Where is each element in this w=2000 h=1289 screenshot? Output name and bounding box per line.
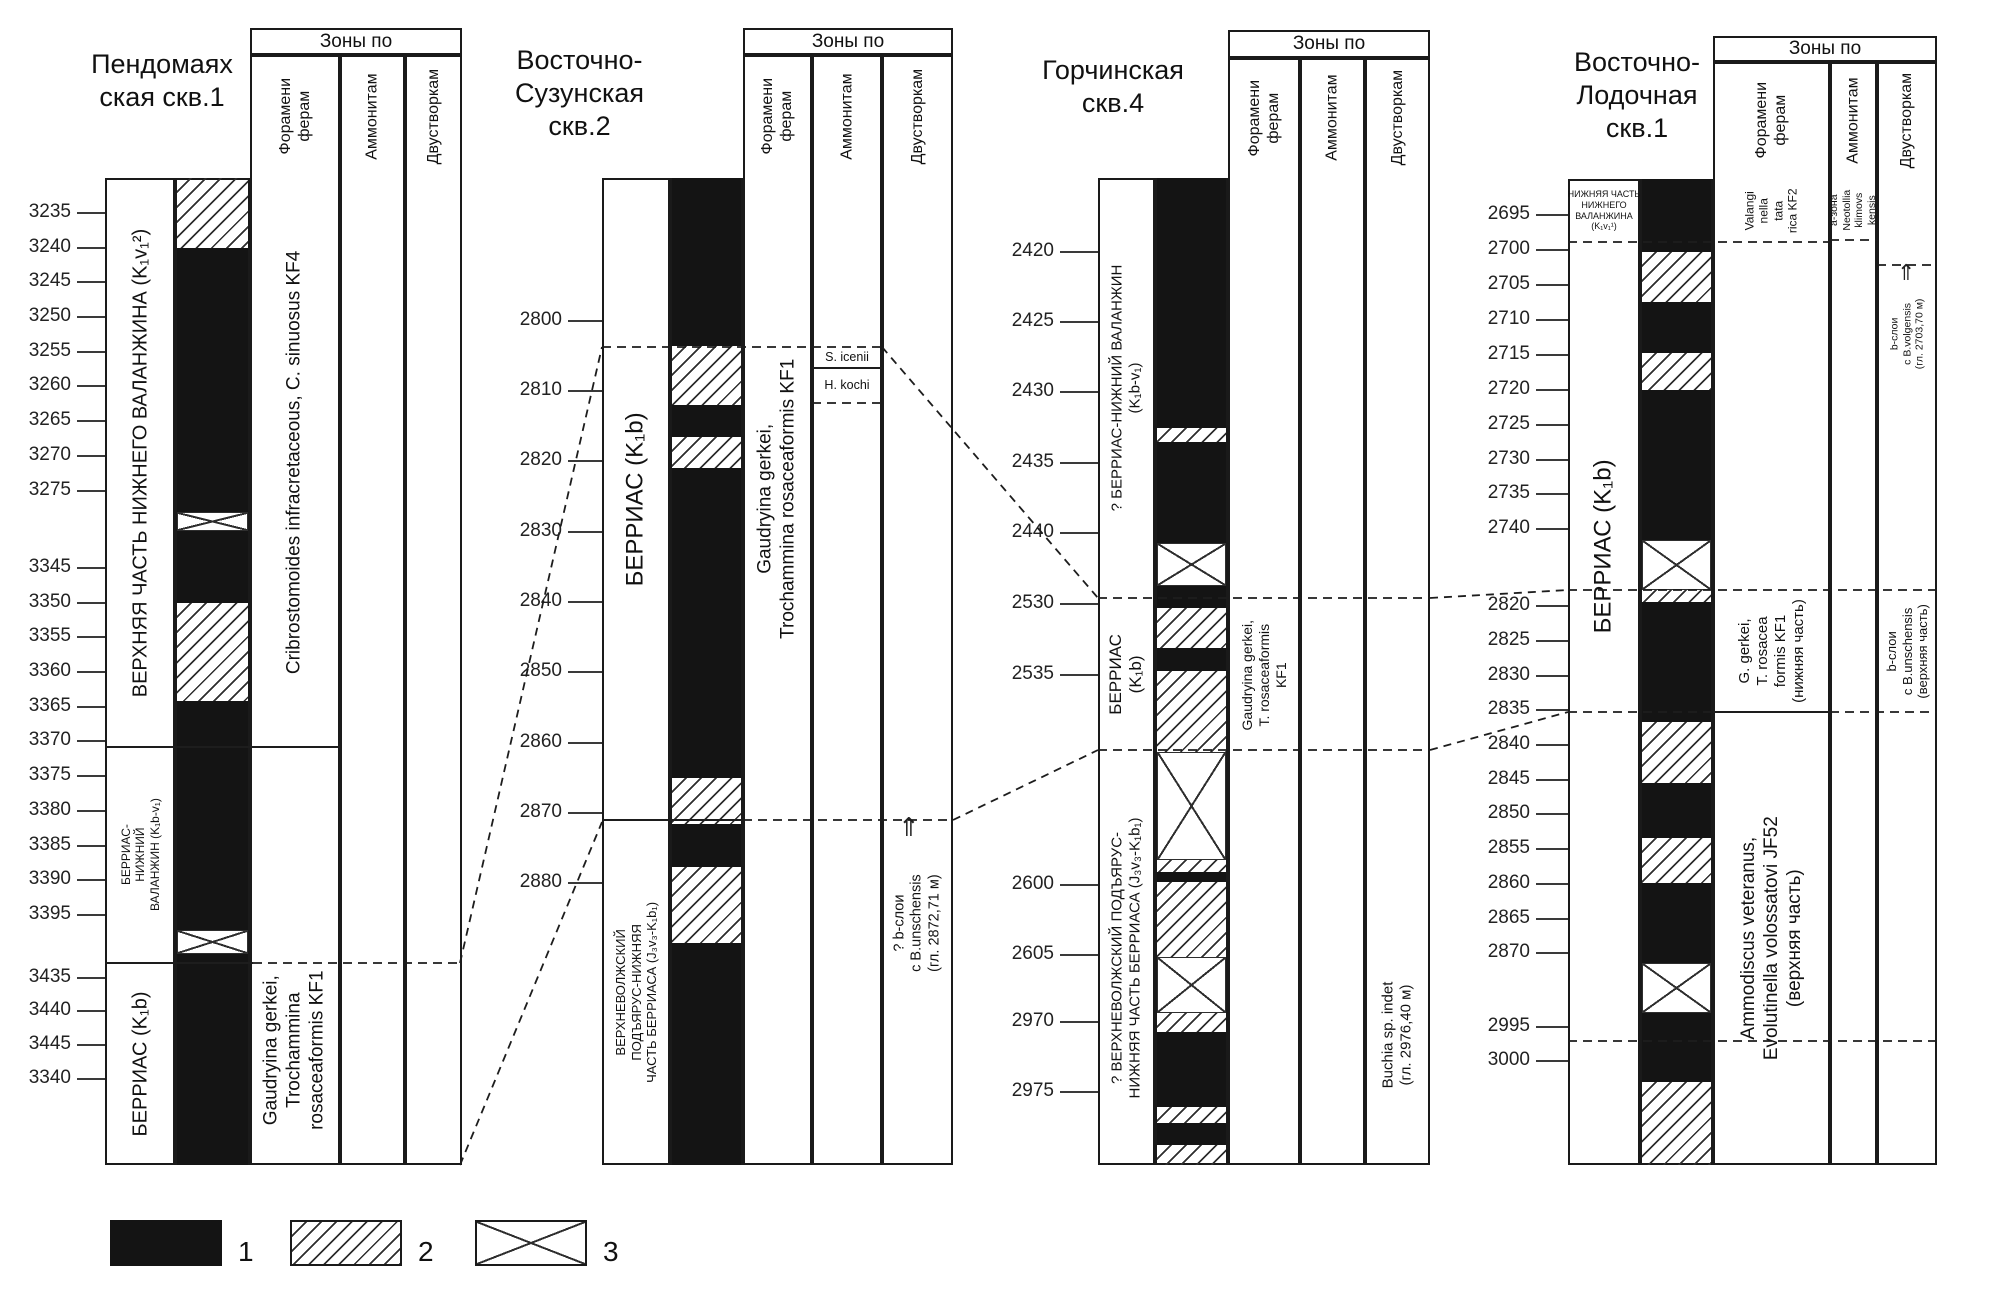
zone-column-label-text: Двустворкам — [1897, 73, 1916, 169]
text-line: (верхняя часть) — [1915, 604, 1931, 698]
depth-tick-line — [1060, 1021, 1098, 1023]
well-title-line: ская скв.1 — [52, 81, 272, 114]
litho-band-hatch — [1642, 722, 1711, 783]
depth-tick-label: 2600 — [992, 873, 1054, 895]
depth-tick-line — [568, 671, 602, 673]
text-line: (K₁b) — [1127, 634, 1147, 715]
strat-unit-label: ВЕРХНЯЯ ЧАСТЬ НИЖНЕГО ВАЛАНЖИНА (K₁v₁²) — [105, 178, 175, 747]
litho-band-hatch — [672, 778, 741, 824]
litho-band-hatch — [1157, 428, 1226, 442]
zone-column-label: Двустворкам — [1877, 62, 1937, 179]
text-line: rosaceaformis KF1 — [306, 970, 329, 1129]
up-arrow-icon: ⇑ — [1897, 262, 1915, 284]
zone-column-label-text: Двустворкам — [908, 69, 927, 165]
depth-tick-label: 2740 — [1468, 517, 1530, 539]
text-line: Двустворкам — [1897, 73, 1916, 169]
depth-tick-line — [1536, 389, 1568, 391]
zone-column-label: Аммонитам — [812, 55, 882, 178]
zones-header: Зоны по — [1713, 36, 1937, 62]
depth-tick-label: 2845 — [1468, 768, 1530, 790]
litho-band-black — [1157, 648, 1226, 671]
depth-tick-line — [1536, 214, 1568, 216]
depth-tick-label: 3380 — [9, 799, 71, 821]
zone-text-text: Buchia sp. indet(гл. 2976,40 м) — [1380, 982, 1416, 1089]
zone-column-ammonites — [340, 55, 405, 1165]
text-line: БЕРРИАС (K₁b) — [622, 412, 651, 586]
text-line: ферам — [1772, 82, 1791, 159]
depth-tick-line — [568, 882, 602, 884]
text-line: b-слои — [1884, 604, 1900, 698]
depth-tick-line — [1060, 1091, 1098, 1093]
zone-column-label: Форамениферам — [743, 55, 812, 178]
text-line: ВАЛАНЖИНА — [1568, 211, 1641, 222]
zone-column-label: Форамениферам — [1713, 62, 1830, 179]
zones-header-label: Зоны по — [320, 31, 392, 53]
depth-tick-line — [1060, 674, 1098, 676]
well-title: Пендомаяхская скв.1 — [52, 48, 272, 114]
text-line: Cribrostomoides infracretaceous, C. sinu… — [284, 251, 307, 674]
strat-unit-label-text: БЕРРИАС(K₁b) — [1106, 634, 1147, 715]
text-line: T. rosacea — [1753, 599, 1771, 703]
depth-tick-line — [1060, 884, 1098, 886]
depth-tick-label: 2825 — [1468, 629, 1530, 651]
strat-unit-label: БЕРРИАС-НИЖНИЙВАЛАНЖИН (K₁b-v₁) — [105, 747, 175, 963]
depth-tick-label: 2420 — [992, 240, 1054, 262]
depth-tick-line — [1536, 528, 1568, 530]
depth-tick-line — [1536, 1026, 1568, 1028]
depth-tick-label: 2720 — [1468, 378, 1530, 400]
depth-tick-label: 2425 — [992, 310, 1054, 332]
depth-tick-line — [1536, 813, 1568, 815]
depth-tick-line — [568, 320, 602, 322]
depth-tick-label: 2725 — [1468, 413, 1530, 435]
litho-band-black — [1642, 883, 1711, 963]
litho-band-hatch — [1157, 860, 1226, 872]
depth-tick-line — [1060, 321, 1098, 323]
depth-tick-label: 3345 — [9, 556, 71, 578]
text-line: Evolutinella volossatovi JF52 — [1760, 817, 1783, 1061]
depth-tick-label: 2605 — [992, 943, 1054, 965]
text-line: БЕРРИАС- — [118, 799, 132, 912]
up-arrow-icon: ⇑ — [898, 814, 920, 840]
zone-text-text: G. gerkei,T. rosaceaformis KF1(нижняя ча… — [1735, 599, 1807, 703]
litho-band-black — [1642, 390, 1711, 540]
zone-column-label: Форамениферам — [1228, 58, 1300, 178]
depth-tick-label: 2865 — [1468, 907, 1530, 929]
depth-tick-label: 2530 — [992, 592, 1054, 614]
litho-band-hatch — [672, 437, 741, 468]
depth-tick-line — [77, 879, 105, 881]
text-line: (верхняя часть) — [1783, 817, 1806, 1061]
depth-tick-label: 2710 — [1468, 308, 1530, 330]
text-line: (гл. 2703,70 м) — [1913, 299, 1926, 370]
depth-tick-line — [1536, 952, 1568, 954]
zone-text: Gaudryina gerkei,Trochammina rosaceaform… — [743, 178, 812, 820]
text-line: a-зона — [1828, 190, 1841, 231]
strat-unit-label: БЕРРИАС (K₁b) — [602, 178, 670, 820]
text-line: с B.volgensis — [1901, 299, 1914, 370]
text-line: Trochammina — [284, 970, 307, 1129]
depth-tick-label: 2850 — [500, 660, 562, 682]
depth-tick-line — [1060, 391, 1098, 393]
strat-unit-label-text: НИЖНЯЯ ЧАСТЬНИЖНЕГОВАЛАНЖИНА(K₁v₁¹) — [1568, 189, 1641, 232]
litho-band-hatch — [1157, 882, 1226, 957]
litho-band-hatch — [177, 178, 248, 248]
text-line: Gaudryina gerkei, — [755, 359, 778, 639]
depth-tick-line — [1060, 462, 1098, 464]
zone-text-text: Gaudryina gerkei,T. rosaceaformisKF1 — [1239, 620, 1289, 731]
depth-tick-label: 3250 — [9, 305, 71, 327]
litho-band-black — [672, 178, 741, 346]
text-line: kensis — [1866, 190, 1879, 231]
text-line: НИЖНИЙ — [133, 799, 147, 912]
litho-band-black — [1157, 1032, 1226, 1107]
well-title-line: скв.2 — [462, 110, 697, 143]
text-line: (нижняя часть) — [1789, 599, 1807, 703]
litho-band-black — [177, 531, 248, 603]
text-line: Gaudryina gerkei, — [1239, 620, 1256, 731]
depth-tick-line — [77, 1078, 105, 1080]
text-line: Аммонитам — [1323, 75, 1342, 161]
depth-tick-label: 2840 — [500, 590, 562, 612]
zones-header-label: Зоны по — [812, 31, 884, 53]
text-line: G. gerkei, — [1735, 599, 1753, 703]
legend-swatch-cross — [475, 1220, 587, 1266]
text-line: Форамени — [276, 78, 295, 155]
litho-band-hatch — [1157, 1013, 1226, 1032]
zone-text: a-зонаNeotolliaklimovskensis — [1830, 179, 1877, 242]
litho-band-hatch — [1642, 1082, 1711, 1165]
zone-text-text: Valanginellatatarica KF2 — [1743, 188, 1801, 233]
text-line: Двустворкам — [908, 69, 927, 165]
depth-tick-line — [77, 490, 105, 492]
depth-tick-label: 2870 — [1468, 941, 1530, 963]
zone-column-ammonites — [812, 55, 882, 1165]
depth-tick-line — [77, 977, 105, 979]
strat-unit-label-text: БЕРРИАС (K₁b) — [622, 412, 651, 586]
zone-column-bivalves — [405, 55, 462, 1165]
zone-text: Ammodiscus veteranus,Evolutinella voloss… — [1713, 712, 1830, 1165]
depth-tick-label: 2855 — [1468, 837, 1530, 859]
text-line: Neotollia — [1841, 190, 1854, 231]
depth-tick-line — [1536, 848, 1568, 850]
depth-tick-label: 2820 — [1468, 594, 1530, 616]
depth-tick-line — [77, 281, 105, 283]
depth-tick-line — [1536, 424, 1568, 426]
strat-unit-label: БЕРРИАС(K₁b) — [1098, 598, 1155, 750]
depth-tick-line — [1536, 459, 1568, 461]
text-line: (гл. 2976,40 м) — [1398, 982, 1416, 1089]
depth-tick-line — [1060, 603, 1098, 605]
depth-tick-line — [77, 247, 105, 249]
text-line: НИЖНЯЯ ЧАСТЬ БЕРРИАСА (J₃v₃-K₁b₁) — [1127, 817, 1145, 1098]
depth-tick-line — [1536, 675, 1568, 677]
zones-header: Зоны по — [250, 28, 462, 55]
text-line: Gaudryina gerkei, — [261, 970, 284, 1129]
depth-tick-label: 3365 — [9, 695, 71, 717]
text-line: ЧАСТЬ БЕРРИАСА (J₃v₃-K₁b₁) — [644, 902, 660, 1083]
zone-column-label: Аммонитам — [1830, 62, 1877, 179]
zone-text: S. icenii — [812, 347, 882, 368]
text-line: Valangi — [1743, 188, 1757, 233]
text-line: nella — [1757, 188, 1771, 233]
text-line: Аммонитам — [837, 73, 856, 159]
strat-unit-label-text: БЕРРИАС (K₁b) — [1590, 459, 1619, 633]
depth-tick-line — [1536, 249, 1568, 251]
text-line: formis KF1 — [1771, 599, 1789, 703]
depth-tick-line — [1536, 493, 1568, 495]
zones-header: Зоны по — [1228, 30, 1430, 58]
strat-unit-label-text: ВЕРХНЯЯ ЧАСТЬ НИЖНЕГО ВАЛАНЖИНА (K₁v₁²) — [128, 228, 152, 697]
text-line: (гл. 2872,71 м) — [926, 874, 943, 972]
depth-tick-label: 3445 — [9, 1033, 71, 1055]
litho-band-black — [1642, 602, 1711, 722]
depth-tick-label: 2715 — [1468, 343, 1530, 365]
depth-tick-line — [568, 601, 602, 603]
zone-text-text: b-слоис B.volgensis(гл. 2703,70 м) — [1888, 299, 1926, 370]
litho-band-black — [1157, 178, 1226, 428]
depth-tick-label: 2735 — [1468, 482, 1530, 504]
litho-band-black — [1642, 783, 1711, 838]
litho-band-cross — [177, 512, 248, 531]
well-title-line: скв.1 — [1542, 112, 1732, 145]
zone-column-label-text: Аммонитам — [837, 73, 856, 159]
strat-unit-label: НИЖНЯЯ ЧАСТЬНИЖНЕГОВАЛАНЖИНА(K₁v₁¹) — [1568, 179, 1640, 242]
depth-tick-label: 2830 — [1468, 664, 1530, 686]
depth-tick-label: 2835 — [1468, 698, 1530, 720]
litho-band-black — [1157, 1123, 1226, 1145]
text-line: H. kochi — [824, 378, 869, 393]
depth-tick-line — [77, 740, 105, 742]
depth-tick-label: 3255 — [9, 340, 71, 362]
text-line: ? ВЕРХНЕВОЛЖСКИЙ ПОДЪЯРУС- — [1109, 817, 1127, 1098]
depth-tick-label: 2860 — [500, 731, 562, 753]
depth-tick-label: 3395 — [9, 903, 71, 925]
depth-tick-line — [568, 742, 602, 744]
depth-tick-line — [77, 567, 105, 569]
litho-band-black — [1157, 442, 1226, 543]
strat-unit-label: ? БЕРРИАС-НИЖНИЙ ВАЛАНЖИН(K₁b-v₁) — [1098, 178, 1155, 598]
zone-column-label: Двустворкам — [405, 55, 462, 178]
stratigraphic-correlation-diagram: Пендомаяхская скв.1Зоны поФорамениферамА… — [0, 0, 2000, 1289]
depth-tick-label: 2800 — [500, 309, 562, 331]
depth-tick-line — [77, 1010, 105, 1012]
depth-tick-label: 3240 — [9, 236, 71, 258]
litho-band-hatch — [672, 346, 741, 405]
litho-band-hatch — [1157, 1107, 1226, 1123]
zone-text: H. kochi — [812, 368, 882, 403]
text-line: Trochammina rosaceaformis KF1 — [778, 359, 801, 639]
depth-tick-line — [1536, 319, 1568, 321]
litho-band-cross — [1642, 540, 1711, 590]
depth-tick-label: 2730 — [1468, 448, 1530, 470]
legend-label: 2 — [418, 1236, 434, 1268]
text-line: ПОДЪЯРУС-НИЖНЯЯ — [628, 902, 644, 1083]
zone-text-text: b-слоис B.unschensis(верхняя часть) — [1884, 604, 1931, 698]
depth-tick-line — [77, 636, 105, 638]
well-title: Восточно-Сузунскаяскв.2 — [462, 44, 697, 143]
strat-unit-label: ВЕРХНЕВОЛЖСКИЙПОДЪЯРУС-НИЖНЯЯЧАСТЬ БЕРРИ… — [602, 820, 670, 1165]
depth-tick-label: 3235 — [9, 201, 71, 223]
strat-unit-label-text: БЕРРИАС-НИЖНИЙВАЛАНЖИН (K₁b-v₁) — [118, 799, 161, 912]
litho-band-hatch — [1642, 252, 1711, 302]
text-line: с B.unschensis — [1899, 604, 1915, 698]
depth-tick-label: 3350 — [9, 591, 71, 613]
depth-tick-label: 3270 — [9, 444, 71, 466]
well-title: Горчинскаяскв.4 — [1018, 54, 1208, 120]
well-title-line: Восточно- — [462, 44, 697, 77]
legend-label: 3 — [603, 1236, 619, 1268]
strat-unit-label-text: ? БЕРРИАС-НИЖНИЙ ВАЛАНЖИН(K₁b-v₁) — [1109, 265, 1145, 512]
zone-text: Cribrostomoides infracretaceous, C. sinu… — [250, 178, 340, 747]
litho-band-hatch — [1642, 590, 1711, 602]
strat-unit-label: ? ВЕРХНЕВОЛЖСКИЙ ПОДЪЯРУС-НИЖНЯЯ ЧАСТЬ Б… — [1098, 750, 1155, 1165]
litho-band-black — [177, 248, 248, 512]
zone-column-label-text: Форамениферам — [758, 78, 796, 155]
depth-tick-line — [568, 460, 602, 462]
depth-tick-label: 3375 — [9, 764, 71, 786]
litho-band-hatch — [672, 867, 741, 943]
zone-text-text: S. icenii — [825, 350, 869, 365]
depth-tick-label: 3265 — [9, 409, 71, 431]
text-line: (K₁b-v₁) — [1127, 265, 1145, 512]
depth-tick-line — [1060, 532, 1098, 534]
zone-text-text: H. kochi — [824, 378, 869, 393]
zone-column-label-text: Двустворкам — [1388, 70, 1407, 166]
depth-tick-label: 2810 — [500, 379, 562, 401]
litho-band-cross — [1157, 752, 1226, 860]
zones-header-label: Зоны по — [1293, 33, 1365, 55]
depth-tick-line — [1536, 918, 1568, 920]
depth-tick-line — [568, 531, 602, 533]
zone-column-label-text: Двустворкам — [424, 69, 443, 165]
zone-column-label-text: Аммонитам — [363, 73, 382, 159]
depth-tick-line — [77, 1044, 105, 1046]
zone-text-text: a-зонаNeotolliaklimovskensis — [1828, 190, 1878, 231]
depth-tick-line — [1536, 605, 1568, 607]
well-title-line: Горчинская — [1018, 54, 1208, 87]
legend-swatch-hatch — [290, 1220, 402, 1266]
depth-tick-line — [77, 845, 105, 847]
depth-tick-label: 2970 — [992, 1010, 1054, 1032]
litho-band-black — [1157, 872, 1226, 882]
text-line: ферам — [778, 78, 797, 155]
well-title-line: Сузунская — [462, 77, 697, 110]
zone-text: b-слоис B.volgensis(гл. 2703,70 м) — [1877, 268, 1937, 400]
strat-unit-label-text: ВЕРХНЕВОЛЖСКИЙПОДЪЯРУС-НИЖНЯЯЧАСТЬ БЕРРИ… — [613, 902, 660, 1083]
text-line: T. rosaceaformis — [1256, 620, 1273, 731]
text-line: ВЕРХНЕВОЛЖСКИЙ — [613, 902, 629, 1083]
depth-tick-label: 2870 — [500, 801, 562, 823]
depth-tick-line — [1536, 640, 1568, 642]
zone-column-label: Аммонитам — [340, 55, 405, 178]
depth-tick-line — [77, 420, 105, 422]
zone-column-label: Двустворкам — [1365, 58, 1430, 178]
litho-band-hatch — [1642, 353, 1711, 390]
depth-tick-line — [1536, 709, 1568, 711]
depth-tick-line — [77, 914, 105, 916]
text-line: Двустворкам — [1388, 70, 1407, 166]
depth-tick-label: 2430 — [992, 380, 1054, 402]
text-line: Ammodiscus veteranus, — [1737, 817, 1760, 1061]
litho-band-hatch — [1157, 1145, 1226, 1165]
litho-band-hatch — [177, 603, 248, 701]
depth-tick-label: 2535 — [992, 663, 1054, 685]
text-line: Аммонитам — [1844, 77, 1863, 163]
text-line: НИЖНЕГО — [1568, 200, 1641, 211]
legend-swatch-black — [110, 1220, 222, 1266]
litho-band-cross — [1157, 543, 1226, 586]
text-line: Аммонитам — [363, 73, 382, 159]
depth-tick-label: 3260 — [9, 374, 71, 396]
well-title-line: Пендомаях — [52, 48, 272, 81]
zone-column-label-text: Форамениферам — [1752, 82, 1790, 159]
strat-unit-label: БЕРРИАС (K₁b) — [1568, 242, 1640, 850]
depth-tick-line — [77, 316, 105, 318]
zone-text: Gaudryina gerkei,Trochamminarosaceaformi… — [250, 935, 340, 1165]
zone-text: Valanginellatatarica KF2 — [1713, 179, 1830, 242]
text-line: БЕРРИАС (K₁b) — [1590, 459, 1619, 633]
litho-band-black — [177, 701, 248, 930]
litho-band-black — [177, 954, 248, 1165]
zone-text: ? b-слоис B.unschensis(гл. 2872,71 м) — [882, 826, 953, 1020]
text-line: ? b-слои — [891, 874, 908, 972]
depth-tick-label: 2820 — [500, 449, 562, 471]
zones-header: Зоны по — [743, 28, 953, 55]
text-line: tata — [1772, 188, 1786, 233]
depth-tick-label: 3355 — [9, 625, 71, 647]
text-line: НИЖНЯЯ ЧАСТЬ — [1568, 189, 1641, 200]
text-line: БЕРРИАС (K₁b) — [128, 992, 152, 1137]
strat-unit-label: БЕРРИАС (K₁b) — [105, 963, 175, 1165]
depth-tick-line — [1536, 744, 1568, 746]
depth-tick-line — [77, 212, 105, 214]
text-line: Форамени — [1752, 82, 1771, 159]
depth-tick-label: 2995 — [1468, 1015, 1530, 1037]
depth-tick-label: 3275 — [9, 479, 71, 501]
depth-tick-line — [77, 775, 105, 777]
zone-text-text: Gaudryina gerkei,Trochamminarosaceaformi… — [261, 970, 329, 1129]
depth-tick-line — [568, 390, 602, 392]
zone-text-text: Ammodiscus veteranus,Evolutinella voloss… — [1737, 817, 1805, 1061]
text-line: БЕРРИАС — [1106, 634, 1126, 715]
zone-text-text: Gaudryina gerkei,Trochammina rosaceaform… — [755, 359, 801, 639]
zone-column-label: Аммонитам — [1300, 58, 1365, 178]
zone-text: Gaudryina gerkei,T. rosaceaformisKF1 — [1228, 555, 1300, 795]
litho-band-cross — [177, 930, 248, 954]
well-title-line: Восточно- — [1542, 46, 1732, 79]
depth-tick-line — [77, 810, 105, 812]
depth-tick-label: 2695 — [1468, 203, 1530, 225]
depth-tick-line — [1536, 883, 1568, 885]
zone-column-label-text: Форамениферам — [276, 78, 314, 155]
depth-tick-label: 2860 — [1468, 872, 1530, 894]
litho-band-black — [672, 405, 741, 437]
depth-tick-line — [77, 602, 105, 604]
text-line: с B.unschensis — [909, 874, 926, 972]
depth-tick-label: 3385 — [9, 834, 71, 856]
well-title: Восточно-Лодочнаяскв.1 — [1542, 46, 1732, 145]
text-line: S. icenii — [825, 350, 869, 365]
depth-tick-label: 2880 — [500, 871, 562, 893]
strat-unit-label-text: ? ВЕРХНЕВОЛЖСКИЙ ПОДЪЯРУС-НИЖНЯЯ ЧАСТЬ Б… — [1109, 817, 1145, 1098]
text-line: Форамени — [1245, 80, 1264, 157]
text-line: ? БЕРРИАС-НИЖНИЙ ВАЛАНЖИН — [1109, 265, 1127, 512]
zone-column-ammonites — [1300, 58, 1365, 1165]
text-line: KF1 — [1272, 620, 1289, 731]
depth-tick-label: 3440 — [9, 999, 71, 1021]
litho-band-black — [1642, 1013, 1711, 1082]
